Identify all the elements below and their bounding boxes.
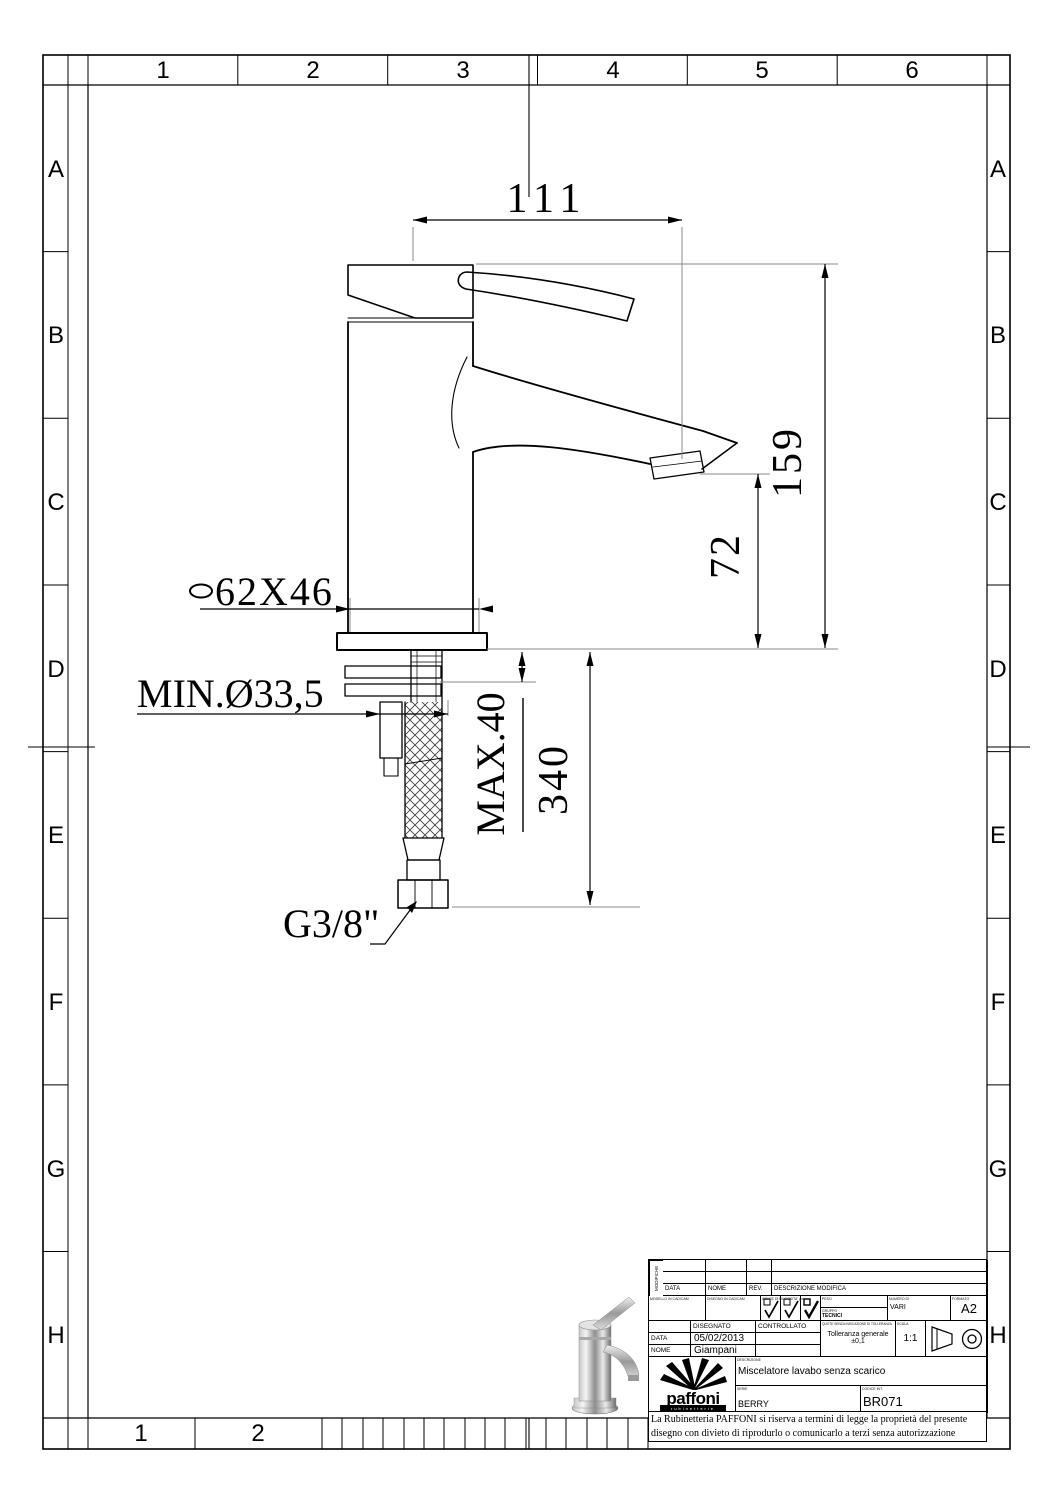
data-value: 05/02/2013 (691, 1333, 756, 1345)
oval-symbol (190, 585, 212, 598)
serie-value: BERRY (736, 1391, 860, 1409)
rev-cell (663, 1272, 706, 1284)
top-col-label: 5 (755, 57, 768, 84)
tolleranza-label: QUOTE SENZA INDICAZIONE DI TOLLERANZA (821, 1321, 895, 1326)
numero-cell: NUMERO DI VARI (888, 1296, 951, 1321)
aerator (650, 451, 704, 479)
serie-cell: SERIE BERRY (736, 1386, 861, 1413)
row-label-left: F (49, 989, 64, 1016)
row-label-left: E (48, 822, 64, 849)
rev-cell (706, 1260, 747, 1272)
legal-disclaimer: La Rubinetteria PAFFONI si riserva a ter… (648, 1411, 987, 1442)
dimension-62x46: 62X46 (190, 569, 493, 614)
first-angle-projection-icon (929, 1325, 985, 1353)
data-label: DATA (649, 1333, 691, 1345)
top-col-label: 4 (606, 57, 619, 84)
row-label-left: A (48, 156, 64, 183)
dimension-annotations: 111 159 72 62X46 MIN.Ø33,5 (137, 176, 838, 946)
hose-braid (405, 702, 442, 838)
rev-header-descr: DESCRIZIONE MODIFICA (772, 1284, 988, 1296)
dimension-340-text: 340 (531, 743, 577, 815)
gruppo-value: TECNICI (821, 1313, 887, 1319)
nome-label: NOME (649, 1345, 691, 1357)
rev-cell (706, 1272, 747, 1284)
blank-cell (756, 1333, 821, 1345)
supply-hose (398, 702, 448, 908)
bottom-strip-separators (88, 1418, 648, 1449)
tolleranza-value: Tolleranza generale ±0,1 (821, 1326, 895, 1350)
disegnato-label: DISEGNATO (691, 1321, 756, 1333)
roughness-check-icon (802, 1298, 820, 1320)
paffoni-logo: paffoni rubinetterie (650, 1358, 735, 1412)
projection-symbol-cell (926, 1321, 988, 1357)
frame-inner-border (43, 85, 1010, 1418)
row-label-right: A (990, 156, 1006, 183)
rev-cell (772, 1272, 988, 1284)
hose-fitting (403, 838, 444, 860)
rev-header-nome: NOME (706, 1284, 747, 1296)
peso-cell: PESO (821, 1296, 888, 1308)
formato-value: A2 (951, 1301, 987, 1315)
dimension-72: 72 (703, 474, 762, 648)
rev-cell (663, 1260, 706, 1272)
photo-lever (593, 1297, 635, 1330)
dimension-62x46-text: 62X46 (215, 569, 334, 614)
row-label-left: C (47, 489, 64, 516)
faucet-handle (348, 265, 634, 322)
scala-value: 1:1 (896, 1326, 925, 1350)
disclaimer-line-1: La Rubinetteria PAFFONI si riserva a ter… (651, 1413, 984, 1427)
paffoni-palm-icon (660, 1358, 727, 1390)
blank-cell (756, 1345, 821, 1357)
dimension-max-deck: MAX.40 (468, 652, 526, 836)
product-photo (572, 1297, 639, 1414)
rev-header-data: DATA (663, 1284, 706, 1296)
paffoni-tagline: rubinetterie (670, 1406, 714, 1411)
descrizione-value: Miscelatore lavabo senza scarico (736, 1362, 987, 1377)
disclaimer-line-2: disegno con divieto di riprodurlo o comu… (651, 1427, 984, 1441)
row-label-left: G (47, 1156, 66, 1183)
dimension-min-hole-text: MIN.Ø33,5 (137, 671, 324, 716)
dimension-connection: G3/8" (283, 901, 417, 946)
rev-cell (772, 1260, 988, 1272)
bottom-col-label: 2 (251, 1420, 264, 1447)
cadcam-cell-2: DISEGNO IN CAD/CAM (706, 1296, 761, 1321)
rev-header-rev: REV. (747, 1284, 772, 1296)
dimension-159-text: 159 (765, 426, 811, 498)
row-label-left: D (47, 656, 64, 683)
blank-cell (649, 1321, 691, 1333)
handle-lever (458, 272, 634, 321)
row-label-right: G (989, 1156, 1008, 1183)
controllato-label: CONTROLLATO (756, 1321, 821, 1333)
right-strip-separators (987, 252, 1010, 1252)
nome-value: Giampani (691, 1345, 756, 1357)
cadcam-cell-2-label: DISEGNO IN CAD/CAM (706, 1296, 760, 1301)
top-col-label: 2 (306, 57, 319, 84)
faucet-body (348, 322, 473, 633)
rev-cell (747, 1272, 772, 1284)
dimension-111-text: 111 (507, 176, 588, 222)
row-label-right: F (991, 989, 1006, 1016)
peso-label: PESO (821, 1296, 887, 1301)
frame-labels: 1 2 3 4 5 6 A B C D E F G H A B C D E F … (47, 57, 1008, 1447)
top-col-label: 3 (456, 57, 469, 84)
roughness-check-icon (782, 1298, 800, 1320)
spout-bottom-edge (473, 446, 650, 464)
left-strip-separators (43, 252, 68, 1252)
row-label-right: H (989, 1322, 1006, 1349)
dimension-max-deck-text: MAX.40 (468, 692, 513, 835)
row-label-left: H (47, 1322, 64, 1349)
numero-value: VARI (888, 1301, 950, 1311)
formato-cell: FORMATO A2 (951, 1296, 988, 1321)
row-label-right: C (989, 489, 1006, 516)
faucet-spout (473, 366, 737, 479)
dimension-340: 340 (531, 652, 594, 905)
photo-body (579, 1325, 611, 1401)
tolleranza-cell: QUOTE SENZA INDICAZIONE DI TOLLERANZA To… (821, 1321, 896, 1357)
top-col-label: 1 (156, 57, 169, 84)
clamp-nut-plate (345, 684, 441, 696)
descrizione-cell: DESCRIZIONE Miscelatore lavabo senza sca… (736, 1357, 988, 1386)
roughness-check-icon (762, 1298, 780, 1320)
spout-top-edge (473, 366, 737, 443)
title-block: MODIFICHE DATA NOME REV. DESCRIZIONE MOD… (648, 1259, 987, 1412)
drawing-sheet: 1 2 3 4 5 6 A B C D E F G H A B C D E F … (0, 0, 1058, 1497)
codice-value: BR071 (861, 1391, 987, 1409)
dimension-111: 111 (413, 176, 682, 224)
row-label-right: E (990, 822, 1006, 849)
photo-aerator (628, 1375, 639, 1381)
rev-cell (747, 1260, 772, 1272)
scala-cell: SCALA 1:1 (896, 1321, 926, 1357)
dimension-72-text: 72 (703, 533, 749, 579)
dimension-connection-text: G3/8" (283, 901, 379, 946)
clamp-washer (345, 666, 441, 678)
codice-cell: CODICE INT. BR071 (861, 1386, 988, 1413)
logo-cell: paffoni rubinetterie (649, 1357, 736, 1413)
hose-hex-nut (398, 880, 448, 908)
top-col-label: 6 (905, 57, 918, 84)
cadcam-cell-1: MODELLO IN CAD/CAM (649, 1296, 706, 1321)
fixing-stud (380, 702, 402, 758)
spout-throat-line (452, 357, 467, 448)
roughness-label: INDICE DI RUGOSITA' µm (761, 1296, 822, 1301)
base-flange (337, 633, 487, 650)
modifiche-strip: MODIFICHE (649, 1260, 663, 1296)
row-label-right: B (990, 322, 1006, 349)
top-strip-separators (88, 55, 987, 85)
bottom-col-label: 1 (134, 1420, 147, 1447)
dimension-159: 159 (765, 264, 829, 648)
row-label-left: B (48, 322, 64, 349)
cadcam-cell-1-label: MODELLO IN CAD/CAM (649, 1296, 705, 1301)
gruppo-cell: GRUPPO TECNICI (821, 1308, 888, 1321)
row-label-right: D (989, 656, 1006, 683)
